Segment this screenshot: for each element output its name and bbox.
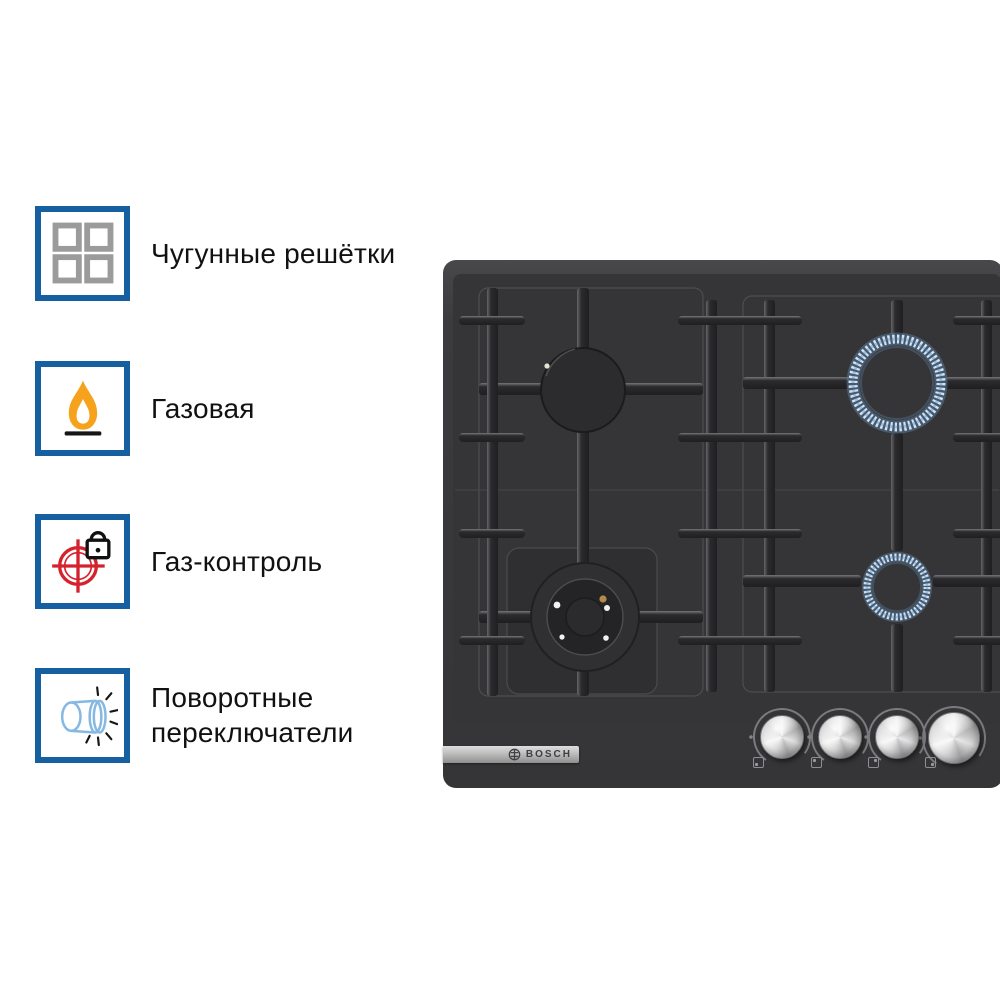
feature-label: Чугунные решётки bbox=[151, 236, 395, 271]
feature-gas-control: Газ-контроль bbox=[35, 513, 322, 609]
burner-front-left-wok bbox=[531, 563, 639, 671]
cast-iron-grates-icon bbox=[35, 206, 130, 301]
control-knob-3 bbox=[875, 715, 919, 759]
control-knob-4 bbox=[928, 712, 980, 764]
burner-back-left bbox=[541, 348, 625, 432]
gas-hob-photo: BOSCH bbox=[443, 260, 1000, 788]
bosch-logo-icon bbox=[508, 748, 521, 761]
brand-label: BOSCH bbox=[526, 750, 572, 760]
burner-indicator-4 bbox=[925, 757, 936, 768]
feature-label: Газовая bbox=[151, 391, 255, 426]
control-knob-2 bbox=[818, 715, 862, 759]
feature-label: Газ-контроль bbox=[151, 544, 322, 579]
feature-cast-iron-grates: Чугунные решётки bbox=[35, 205, 395, 301]
feature-rotary-switches: Поворотные переключатели bbox=[35, 667, 431, 763]
feature-gas: Газовая bbox=[35, 360, 255, 456]
feature-label: Поворотные переключатели bbox=[151, 680, 431, 750]
burner-indicator-2 bbox=[811, 757, 822, 768]
gas-control-icon bbox=[35, 514, 130, 609]
control-knob-1 bbox=[760, 715, 804, 759]
gas-flame-icon bbox=[35, 361, 130, 456]
bosch-logo-bar: BOSCH bbox=[443, 746, 579, 763]
burner-indicator-3 bbox=[868, 757, 879, 768]
rotary-switches-icon bbox=[35, 668, 130, 763]
burner-indicator-1 bbox=[753, 757, 764, 768]
product-card: Чугунные решётки Газовая bbox=[0, 0, 1000, 1000]
hob-graphic bbox=[443, 260, 1000, 788]
